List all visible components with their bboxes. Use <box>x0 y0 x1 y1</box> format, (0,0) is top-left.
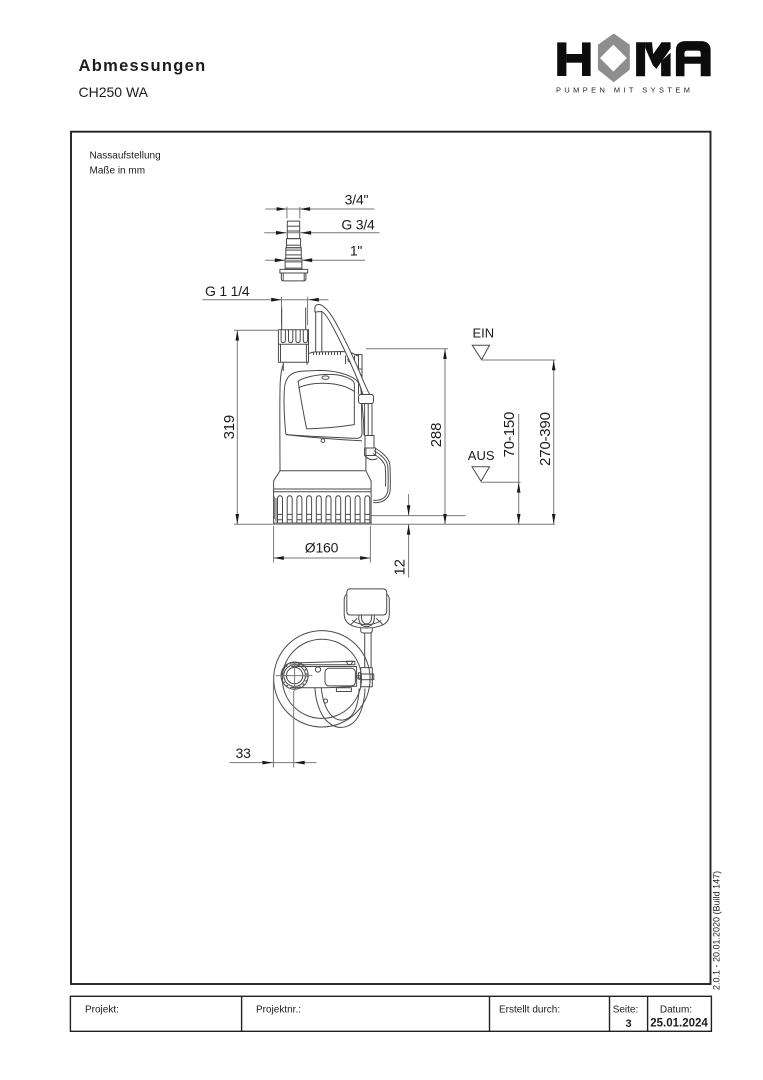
svg-text:PUMPEN MIT SYSTEM: PUMPEN MIT SYSTEM <box>556 86 693 95</box>
svg-text:12: 12 <box>391 559 408 575</box>
svg-text:1": 1" <box>350 243 363 259</box>
svg-text:270-390: 270-390 <box>537 412 554 466</box>
svg-text:Datum:: Datum: <box>660 1005 692 1016</box>
svg-text:70-150: 70-150 <box>501 412 518 458</box>
svg-text:G 3/4: G 3/4 <box>341 216 375 232</box>
svg-text:Abmessungen: Abmessungen <box>79 57 207 75</box>
svg-text:Ø160: Ø160 <box>305 540 339 556</box>
svg-text:CH250 WA: CH250 WA <box>79 84 149 100</box>
svg-text:319: 319 <box>221 415 238 439</box>
svg-text:Erstellt durch:: Erstellt durch: <box>499 1005 560 1016</box>
svg-text:Maße in mm: Maße in mm <box>90 166 146 177</box>
svg-text:288: 288 <box>428 423 445 447</box>
svg-text:3: 3 <box>625 1018 631 1030</box>
svg-text:2.0.1 - 20.01.2020 (Build 14: 2.0.1 - 20.01.2020 (Build 147) <box>712 871 722 990</box>
svg-text:AUS: AUS <box>468 448 495 463</box>
svg-text:33: 33 <box>236 745 252 761</box>
svg-text:G 1 1/4: G 1 1/4 <box>205 283 250 299</box>
svg-text:Projektnr.:: Projektnr.: <box>256 1005 301 1016</box>
svg-text:EIN: EIN <box>473 326 495 341</box>
svg-text:Projekt:: Projekt: <box>85 1005 119 1016</box>
svg-text:3/4": 3/4" <box>345 192 369 208</box>
svg-text:Nassaufstellung: Nassaufstellung <box>90 151 161 162</box>
svg-text:Seite:: Seite: <box>613 1005 639 1016</box>
svg-text:25.01.2024: 25.01.2024 <box>650 1018 708 1030</box>
